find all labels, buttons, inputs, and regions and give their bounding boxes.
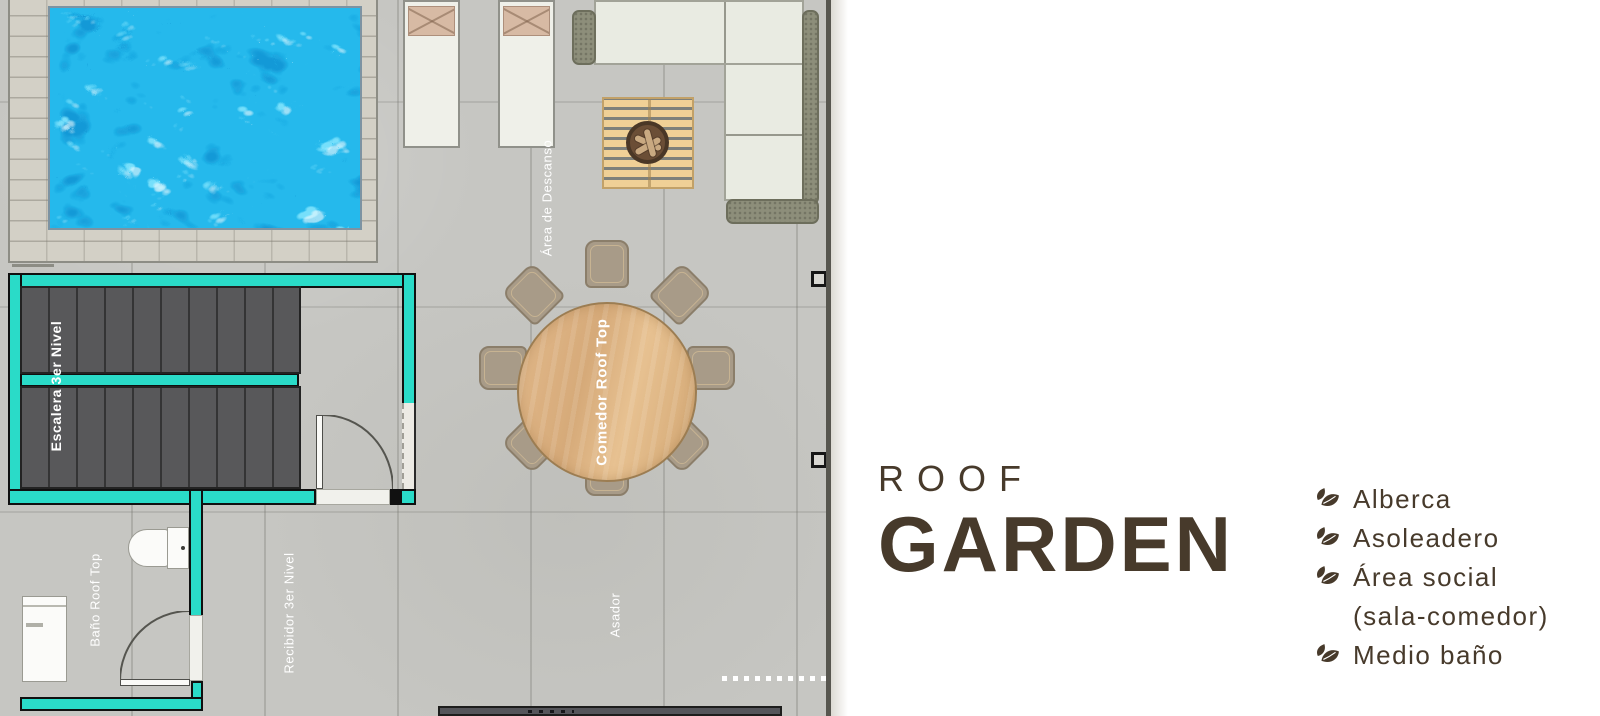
feature-label: Alberca: [1353, 484, 1452, 515]
plan-edge-shadow: [831, 0, 851, 716]
door-threshold-bathroom: [189, 615, 203, 681]
pool-water: [48, 6, 362, 230]
feature-item-continuation: (sala-comedor): [1313, 597, 1549, 636]
feature-item: Medio baño: [1313, 636, 1549, 675]
label-bathroom: Baño Roof Top: [88, 553, 103, 647]
wall-stairs-bottom: [8, 489, 316, 505]
wall-stairs-right: [402, 273, 416, 405]
title-garden: GARDEN: [878, 505, 1234, 583]
door-swing-arc: [323, 415, 393, 489]
label-grill: Asador: [608, 593, 623, 638]
floor-plan: Escalera 3er Nivel Área de Descanso Come…: [0, 0, 832, 716]
leaf-icon: [1312, 484, 1343, 515]
lounger-pillow: [503, 6, 550, 36]
column: [811, 271, 827, 287]
sofa-back-right: [802, 10, 819, 205]
wall-bathroom-right: [189, 489, 203, 617]
feature-label: (sala-comedor): [1353, 601, 1549, 632]
wall-stub: [400, 489, 416, 505]
grill-counter: [438, 706, 782, 716]
feature-item: Área social: [1313, 558, 1549, 597]
leaf-icon: [1312, 523, 1343, 554]
feature-item: Asoleadero: [1313, 519, 1549, 558]
label-rest-area: Área de Descanso: [540, 140, 555, 257]
door-leaf-landing: [316, 415, 323, 489]
leaf-icon: [1312, 562, 1343, 593]
toilet-tank: [167, 527, 189, 569]
fire-pit-bowl: [626, 121, 669, 164]
feature-label: Asoleadero: [1353, 523, 1500, 554]
panel-title: ROOF GARDEN: [878, 458, 1234, 583]
door-threshold-landing: [316, 489, 390, 505]
title-roof: ROOF: [878, 458, 1234, 500]
pool-caustics-texture: [50, 8, 360, 228]
sofa-seam: [726, 134, 802, 136]
lounger-pillow: [408, 6, 455, 36]
column: [811, 452, 827, 468]
toilet-bowl: [128, 529, 169, 567]
feature-label: Área social: [1353, 562, 1498, 593]
sofa-seat-top: [594, 0, 804, 65]
boundary-dotted-line: [722, 676, 837, 681]
bathroom-sink: [22, 596, 67, 682]
dining-chair: [585, 240, 629, 288]
sun-lounger-2: [498, 0, 555, 148]
sofa-seam: [724, 2, 726, 63]
feature-label: Medio baño: [1353, 640, 1504, 671]
wall-opening-dashed: [402, 403, 416, 489]
sofa-arm-bottom: [726, 199, 819, 224]
sofa-arm-left: [572, 10, 596, 65]
label-dining: Comedor Roof Top: [594, 318, 611, 466]
sofa-seat-right: [724, 63, 804, 201]
label-hall: Recibidor 3er Nivel: [282, 552, 297, 673]
toilet-flush-button: [181, 546, 185, 550]
feature-list: Alberca Asoleadero Área social (sala-com…: [1313, 480, 1549, 675]
wall-bathroom-bottom: [20, 697, 203, 711]
door-swing-arc: [120, 611, 190, 681]
leaf-icon: [1312, 640, 1343, 671]
label-stairs: Escalera 3er Nivel: [48, 321, 64, 452]
feature-item: Alberca: [1313, 480, 1549, 519]
sun-lounger-1: [403, 0, 460, 148]
dimension-tick: [12, 264, 54, 267]
